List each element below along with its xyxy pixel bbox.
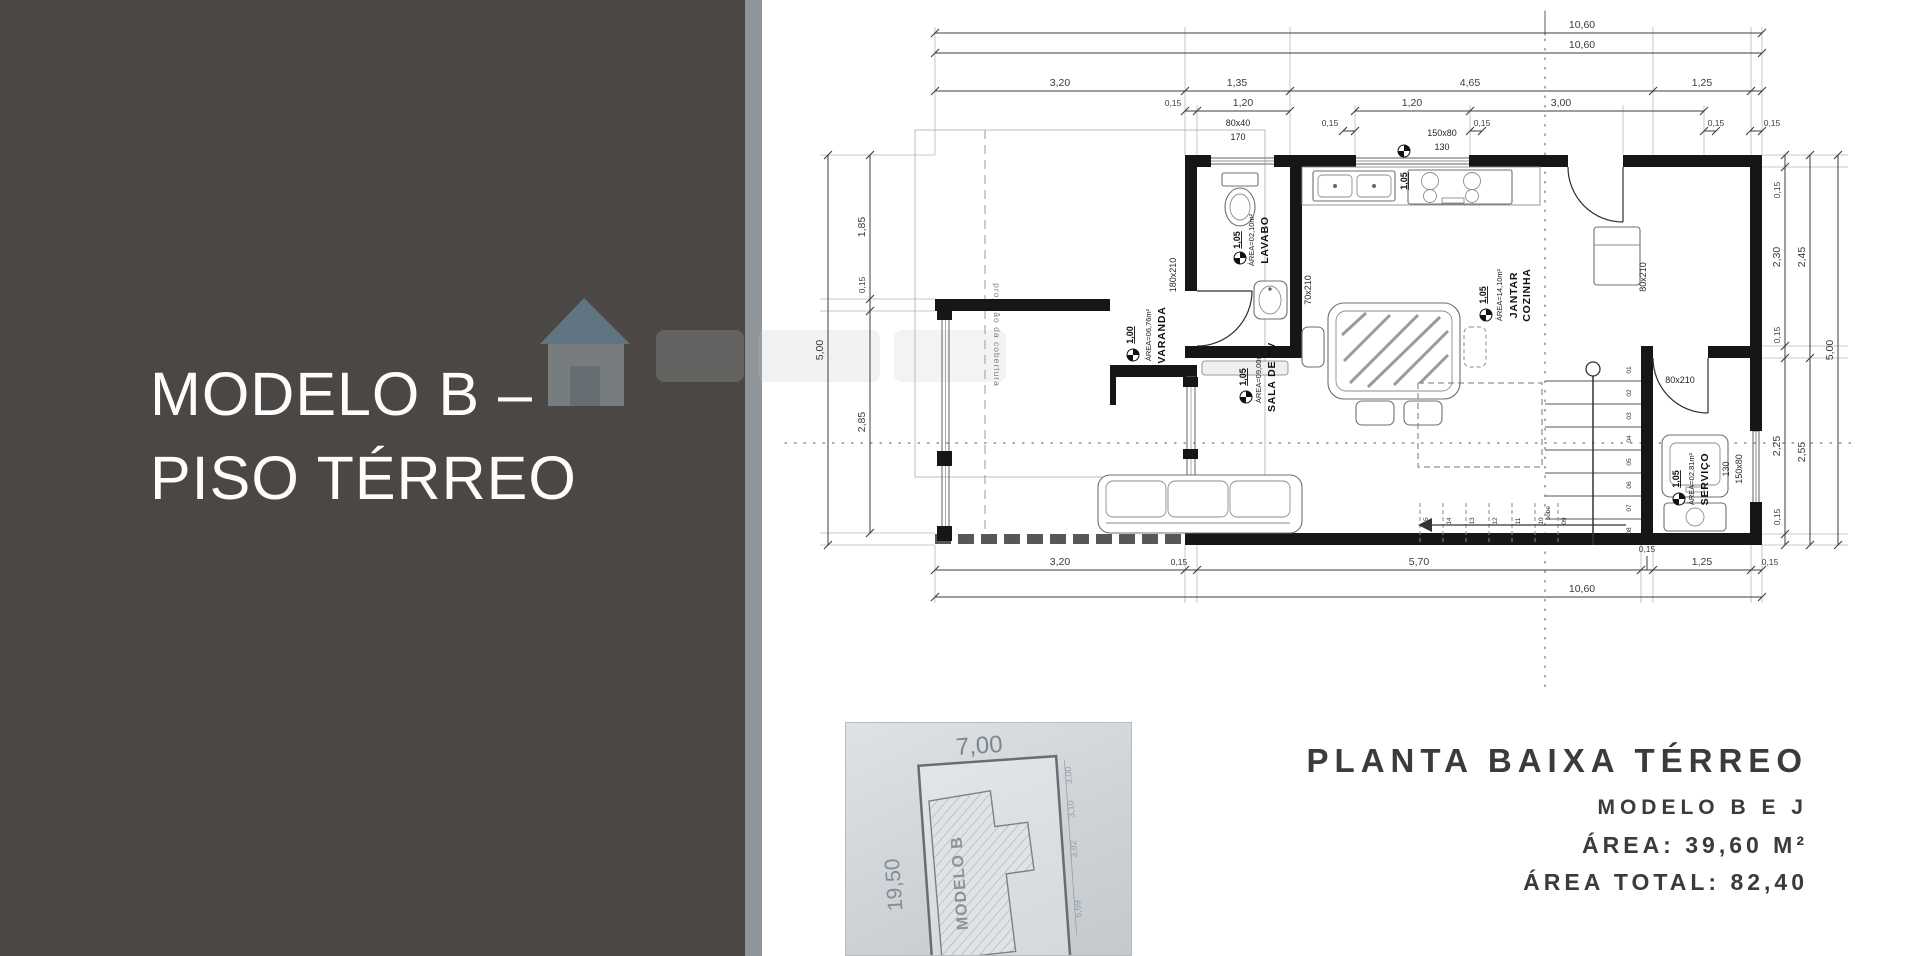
- dim-label: 3,00: [1551, 97, 1572, 109]
- watermark-house-roof: [540, 298, 630, 344]
- dim-label: 0,15: [1764, 118, 1781, 128]
- dim-label: 4,65: [1460, 77, 1481, 89]
- stove: [1408, 170, 1512, 204]
- kitchen-sink: [1313, 171, 1395, 201]
- level-marker-icon: [1127, 349, 1139, 361]
- dim-label: 0,15: [1772, 326, 1782, 343]
- dim-label: 0,15: [857, 276, 867, 293]
- room-area: ÁREA=02,81m²: [1687, 452, 1696, 505]
- room-area: ÁREA=02,10m²: [1247, 213, 1256, 266]
- entry-door: [1568, 167, 1623, 222]
- chair: [1356, 401, 1394, 425]
- dining-table: [1302, 303, 1486, 425]
- door-label: 80x210: [1638, 262, 1648, 292]
- room-name: JANTAR: [1508, 272, 1520, 319]
- sofa: [1098, 475, 1302, 533]
- level-marker-icon: [1480, 309, 1492, 321]
- site-left-dim: 19,50: [881, 858, 908, 912]
- chair: [1302, 327, 1324, 367]
- stair-step-number: 13: [1469, 517, 1476, 525]
- washer: [1664, 503, 1726, 531]
- stair-newel: [1586, 362, 1600, 376]
- stair-step-number: 01: [1626, 366, 1633, 374]
- dim-label: 1,20: [1402, 97, 1423, 109]
- dim-label: 3,20: [1050, 556, 1071, 568]
- stair-step-number: 09: [1561, 517, 1568, 525]
- stair-step-number: 05: [1626, 458, 1633, 466]
- slide-title: MODELO B – PISO TÉRREO: [150, 352, 577, 520]
- stair-step-number: 14: [1446, 517, 1453, 525]
- dim-label: 0,15: [1772, 508, 1782, 525]
- kitchen-counter: [1302, 167, 1540, 205]
- dim-label: 2,45: [1796, 247, 1808, 268]
- dim-label: 0,15: [1322, 118, 1339, 128]
- presentation-slide: MODELO B – PISO TÉRREO projeção da cober…: [0, 0, 1920, 956]
- dim-label: 1,85: [856, 217, 868, 238]
- dim-label: 10,60: [1569, 19, 1595, 31]
- window-label: 150x80: [1734, 454, 1744, 484]
- window-label: 150x80: [1427, 128, 1457, 138]
- site-plan-image: 7,00 19,50 MODELO B 3,00 3,10 3,92 6,69: [845, 722, 1132, 956]
- stair-step-number: 06: [1626, 481, 1633, 489]
- room-name: SALA DE TV: [1266, 342, 1278, 412]
- room-area: ÁREA=09,00m²: [1254, 350, 1263, 403]
- dim-label: 0,15: [1708, 118, 1725, 128]
- dim-label: 5,70: [1409, 556, 1430, 568]
- chair: [1464, 327, 1486, 367]
- dim-label: 1,25: [1692, 556, 1713, 568]
- dim-label: 2,30: [1771, 247, 1783, 268]
- chair: [1404, 401, 1442, 425]
- door-label: 70x210: [1303, 275, 1313, 305]
- dim-label: 1,25: [1692, 77, 1713, 89]
- room-level: 1,05: [1232, 231, 1242, 249]
- site-side-dim: 3,92: [1068, 840, 1079, 858]
- stair-step-number: 12: [1492, 517, 1499, 525]
- dim-label: 2,55: [1796, 442, 1808, 463]
- room-area: ÁREA=06,76m²: [1144, 308, 1153, 361]
- room-name: COZINHA: [1521, 268, 1533, 321]
- slide-title-line1: MODELO B –: [150, 352, 577, 436]
- window-label: 130: [1434, 142, 1449, 152]
- stair-step-number: 08: [1626, 527, 1633, 535]
- stair-sobe-label: sobe: [1545, 506, 1552, 520]
- watermark-text-bar: [656, 330, 744, 382]
- level-marker-icon: [1240, 391, 1252, 403]
- dim-label: 10,60: [1569, 583, 1595, 595]
- dim-label: 2,25: [1771, 436, 1783, 457]
- panel-divider: [745, 0, 762, 956]
- plan-caption: PLANTA BAIXA TÉRREO MODELO B E J ÁREA: 3…: [1307, 742, 1808, 896]
- caption-model: MODELO B E J: [1307, 796, 1808, 820]
- dim-label: 1,35: [1227, 77, 1248, 89]
- dim-label: 3,20: [1050, 77, 1071, 89]
- caption-area-total: ÁREA TOTAL: 82,40: [1307, 869, 1808, 896]
- lavabo-sink: [1254, 281, 1287, 319]
- lavabo-door: [1197, 291, 1252, 346]
- lavabo-window: [1206, 155, 1279, 167]
- site-top-dim: 7,00: [955, 731, 1003, 761]
- level-marker-icon: [1673, 493, 1685, 505]
- room-name: VARANDA: [1156, 306, 1168, 363]
- stair-step-number: 11: [1515, 517, 1522, 524]
- room-level: 1,05: [1238, 368, 1248, 386]
- room-area: ÁREA=14,10m²: [1495, 268, 1504, 321]
- site-side-dim: 3,10: [1065, 800, 1076, 818]
- dim-label: 0,15: [1171, 557, 1188, 567]
- level-marker-icon: [1234, 252, 1246, 264]
- dim-label: 5,00: [1824, 340, 1836, 361]
- stair-step-number: 03: [1626, 412, 1633, 420]
- window-label: 170: [1230, 132, 1245, 142]
- dim-label: 10,60: [1569, 39, 1595, 51]
- stair-step-number: 04: [1626, 435, 1633, 443]
- servico-window: [1750, 426, 1762, 507]
- level-value: 1,05: [1399, 172, 1409, 190]
- varanda-glass-wall: [937, 305, 952, 541]
- stair-step-number: 10: [1538, 517, 1545, 525]
- dim-label: 0,15: [1639, 544, 1656, 554]
- dim-label: 0,15: [1762, 557, 1779, 567]
- floor-plan: projeção da cobertura 10,60 10,60 3,20 1…: [770, 5, 1860, 695]
- window-label: 80x40: [1226, 118, 1251, 128]
- stair-step-number: 02: [1626, 389, 1633, 397]
- level-marker-icon: [1398, 145, 1410, 157]
- kitchen-window: [1351, 155, 1474, 167]
- servico-door: [1653, 358, 1708, 413]
- site-side-dim: 6,69: [1072, 900, 1083, 918]
- roof-projection: projeção da cobertura: [915, 130, 1265, 533]
- door-label: 180x210: [1168, 258, 1178, 293]
- dim-label: 5,00: [814, 340, 826, 361]
- window-label: 130: [1721, 461, 1731, 476]
- room-level: 1,05: [1671, 470, 1681, 488]
- dim-label: 0,15: [1165, 98, 1182, 108]
- caption-area: ÁREA: 39,60 M²: [1307, 832, 1808, 859]
- dim-label: 0,15: [1772, 181, 1782, 198]
- site-plan-drawing: 7,00 19,50 MODELO B 3,00 3,10 3,92 6,69: [846, 723, 1131, 955]
- dim-label: 2,85: [856, 412, 868, 433]
- fridge: [1594, 227, 1640, 285]
- slide-title-line2: PISO TÉRREO: [150, 436, 577, 520]
- door-label: 80x210: [1665, 375, 1695, 385]
- stair-step-number: 07: [1626, 504, 1633, 512]
- dim-label: 1,20: [1233, 97, 1254, 109]
- room-name: SERVIÇO: [1699, 453, 1711, 506]
- caption-title: PLANTA BAIXA TÉRREO: [1307, 742, 1808, 780]
- room-name: LAVABO: [1259, 216, 1271, 264]
- roof-projection-label: projeção da cobertura: [992, 283, 1002, 387]
- room-level: 1,05: [1478, 286, 1488, 304]
- dim-label: 0,15: [1474, 118, 1491, 128]
- room-level: 1,00: [1125, 326, 1135, 344]
- site-side-dim: 3,00: [1063, 766, 1074, 784]
